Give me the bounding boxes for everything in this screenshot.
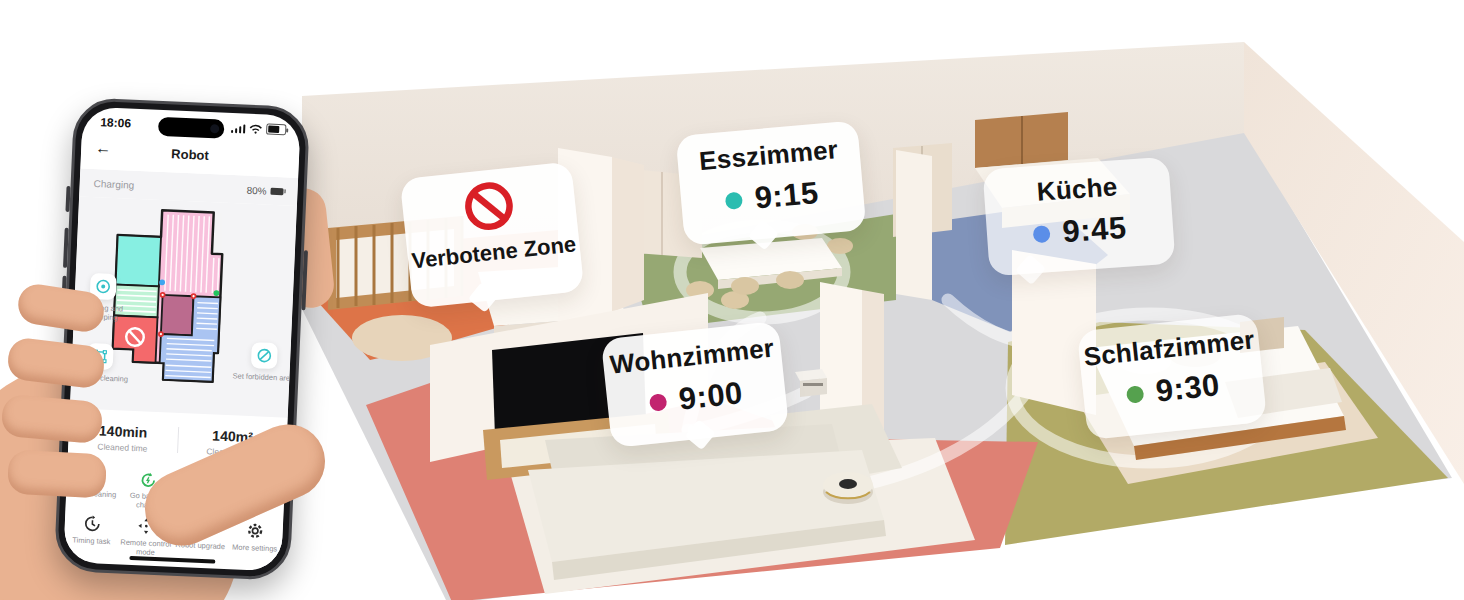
action-label: More settings bbox=[227, 542, 282, 554]
action-label: Timing task bbox=[64, 535, 119, 547]
map-action-label: Set forbidden area bbox=[229, 371, 297, 383]
room-time: 9:30 bbox=[1154, 367, 1221, 409]
room-name: Wohnzimmer bbox=[602, 334, 782, 380]
signal-icon bbox=[231, 124, 246, 134]
mute-switch bbox=[65, 186, 70, 212]
room-time: 9:00 bbox=[677, 375, 744, 417]
map-action-forbidden[interactable]: Set forbidden area bbox=[229, 341, 299, 383]
product-scene: Verbotene Zone Esszimmer 9:15 Küche 9:45… bbox=[0, 0, 1464, 600]
room-label-kueche: Küche 9:45 bbox=[982, 157, 1175, 277]
schedule-dot bbox=[725, 191, 743, 209]
target-icon bbox=[94, 277, 113, 296]
wifi-icon bbox=[249, 124, 262, 135]
schedule-dot bbox=[1126, 385, 1145, 404]
gear-icon bbox=[246, 521, 266, 541]
page-title: Robot bbox=[81, 142, 299, 166]
battery-icon bbox=[266, 123, 286, 135]
charge-state: Charging bbox=[93, 178, 134, 191]
no-entry-icon bbox=[460, 178, 517, 235]
timing-task-button[interactable]: Timing task bbox=[64, 513, 120, 556]
hand-finger bbox=[0, 394, 103, 445]
room-label-wohnzimmer: Wohnzimmer 9:00 bbox=[601, 321, 789, 448]
battery-level: 80% bbox=[246, 184, 266, 196]
status-time: 18:06 bbox=[100, 115, 131, 130]
more-settings-button[interactable]: More settings bbox=[227, 520, 283, 563]
timer-icon bbox=[82, 514, 102, 534]
dynamic-island bbox=[158, 117, 225, 139]
volume-up-button bbox=[63, 228, 69, 268]
camera-lens bbox=[210, 124, 219, 133]
map-room-mauve[interactable] bbox=[161, 295, 194, 336]
forbidden-zone-text: Verbotene Zone bbox=[407, 231, 581, 275]
room-label-schlafzimmer: Schlafzimmer 9:30 bbox=[1077, 313, 1267, 440]
forbidden-zone-label: Verbotene Zone bbox=[400, 161, 585, 308]
room-label-esszimmer: Esszimmer 9:15 bbox=[676, 120, 867, 245]
no-entry-icon bbox=[255, 346, 274, 365]
room-name: Esszimmer bbox=[677, 134, 861, 177]
room-name: Küche bbox=[983, 170, 1170, 210]
room-time: 9:15 bbox=[753, 175, 820, 216]
room-time: 9:45 bbox=[1061, 210, 1127, 250]
cleaning-map-zone: Pointing and sweeping Partition cleaning bbox=[70, 196, 297, 417]
schedule-dot bbox=[649, 393, 668, 412]
robot-vacuum bbox=[823, 472, 873, 504]
schedule-dot bbox=[1033, 225, 1051, 243]
battery-glyph-icon bbox=[270, 187, 283, 195]
hand-finger bbox=[7, 449, 107, 498]
